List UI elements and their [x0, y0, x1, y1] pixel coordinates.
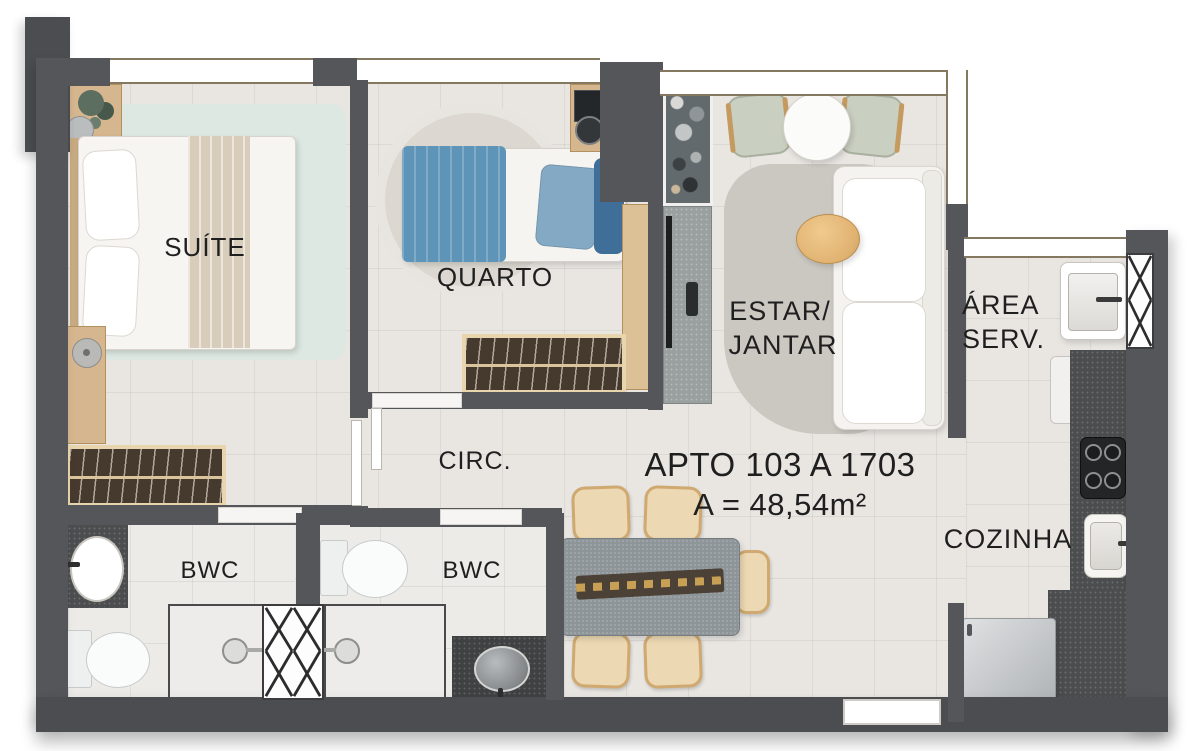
- plant-icon: [78, 90, 104, 116]
- quarto-pillow-light: [535, 164, 602, 251]
- fridge: [962, 618, 1056, 708]
- tv-console: [686, 282, 698, 316]
- wall-pier: [66, 58, 110, 86]
- bwc1-sink: [70, 536, 124, 602]
- kitchen-counter-corner: [1048, 590, 1128, 700]
- window-service-top: [964, 237, 1128, 258]
- wall-left: [36, 58, 68, 722]
- apartment-title: APTO 103 A 1703: [615, 446, 945, 484]
- bwc1-toilet-bowl: [86, 632, 150, 688]
- quarto-door-opening: [372, 393, 462, 408]
- living-shelf-unit: [663, 86, 713, 206]
- wall-kitchen-left: [948, 603, 964, 722]
- suite-door-leaf: [351, 420, 362, 506]
- window-suite: [110, 58, 313, 84]
- dining-chair: [643, 631, 703, 689]
- lamp-icon-center: [83, 349, 90, 356]
- dining-chair: [571, 631, 631, 689]
- floor-plan: SUÍTE QUARTO ESTAR/ JANTAR ÁREA SERV. CO…: [0, 0, 1191, 751]
- bwc1-door-opening: [218, 507, 302, 523]
- bwc1-shower: [168, 604, 264, 700]
- label-circ: CIRC.: [400, 447, 550, 476]
- wall-block-center: [600, 62, 663, 202]
- kitchen-sink-basin: [1090, 522, 1122, 570]
- window-living-right: [946, 70, 968, 206]
- label-cozinha: COZINHA: [938, 524, 1078, 555]
- label-serv-line1: ÁREA: [952, 290, 1072, 321]
- wall-bwc2-right: [546, 513, 564, 700]
- shower-vent-window: [262, 604, 324, 700]
- label-suite: SUÍTE: [130, 232, 280, 263]
- shower-head-icon: [334, 638, 360, 664]
- quarto-door-leaf: [371, 408, 382, 470]
- fridge-handle: [967, 624, 972, 636]
- quarto-wardrobe: [462, 334, 626, 394]
- entry-door: [843, 699, 941, 725]
- label-bwc-suite: BWC: [160, 557, 260, 585]
- laundry-tank-basin: [1068, 273, 1118, 331]
- bwc2-door-opening: [440, 509, 522, 525]
- tv-icon: [666, 216, 672, 348]
- bwc2-sink-bowl: [474, 646, 530, 692]
- faucet-icon: [1096, 297, 1122, 302]
- quarto-blanket: [402, 146, 506, 262]
- shower-head-icon: [222, 638, 248, 664]
- bwc2-toilet-bowl: [342, 540, 408, 598]
- window-living-top: [660, 70, 948, 96]
- balcony-table: [783, 93, 851, 161]
- shower-arm-icon: [246, 648, 262, 652]
- label-estar-line1: ESTAR/: [705, 296, 855, 327]
- wall-suite-right: [350, 80, 368, 418]
- coffee-table: [796, 214, 860, 264]
- cooktop: [1080, 437, 1126, 499]
- apartment-area: A = 48,54m²: [615, 487, 945, 523]
- quarto-cabinet: [622, 204, 650, 390]
- label-bwc-social: BWC: [422, 557, 522, 585]
- window-quarto: [357, 58, 600, 84]
- label-quarto: QUARTO: [420, 262, 570, 293]
- label-estar-line2: JANTAR: [708, 330, 858, 361]
- window-service-x: [1126, 253, 1154, 349]
- suite-wardrobe: [66, 445, 226, 507]
- wall-quarto-living: [648, 200, 663, 410]
- wall-bwc-divider: [296, 513, 320, 608]
- suite-pillow: [82, 149, 141, 242]
- label-serv-line2: SERV.: [952, 324, 1072, 355]
- wall-bottom: [36, 697, 1168, 732]
